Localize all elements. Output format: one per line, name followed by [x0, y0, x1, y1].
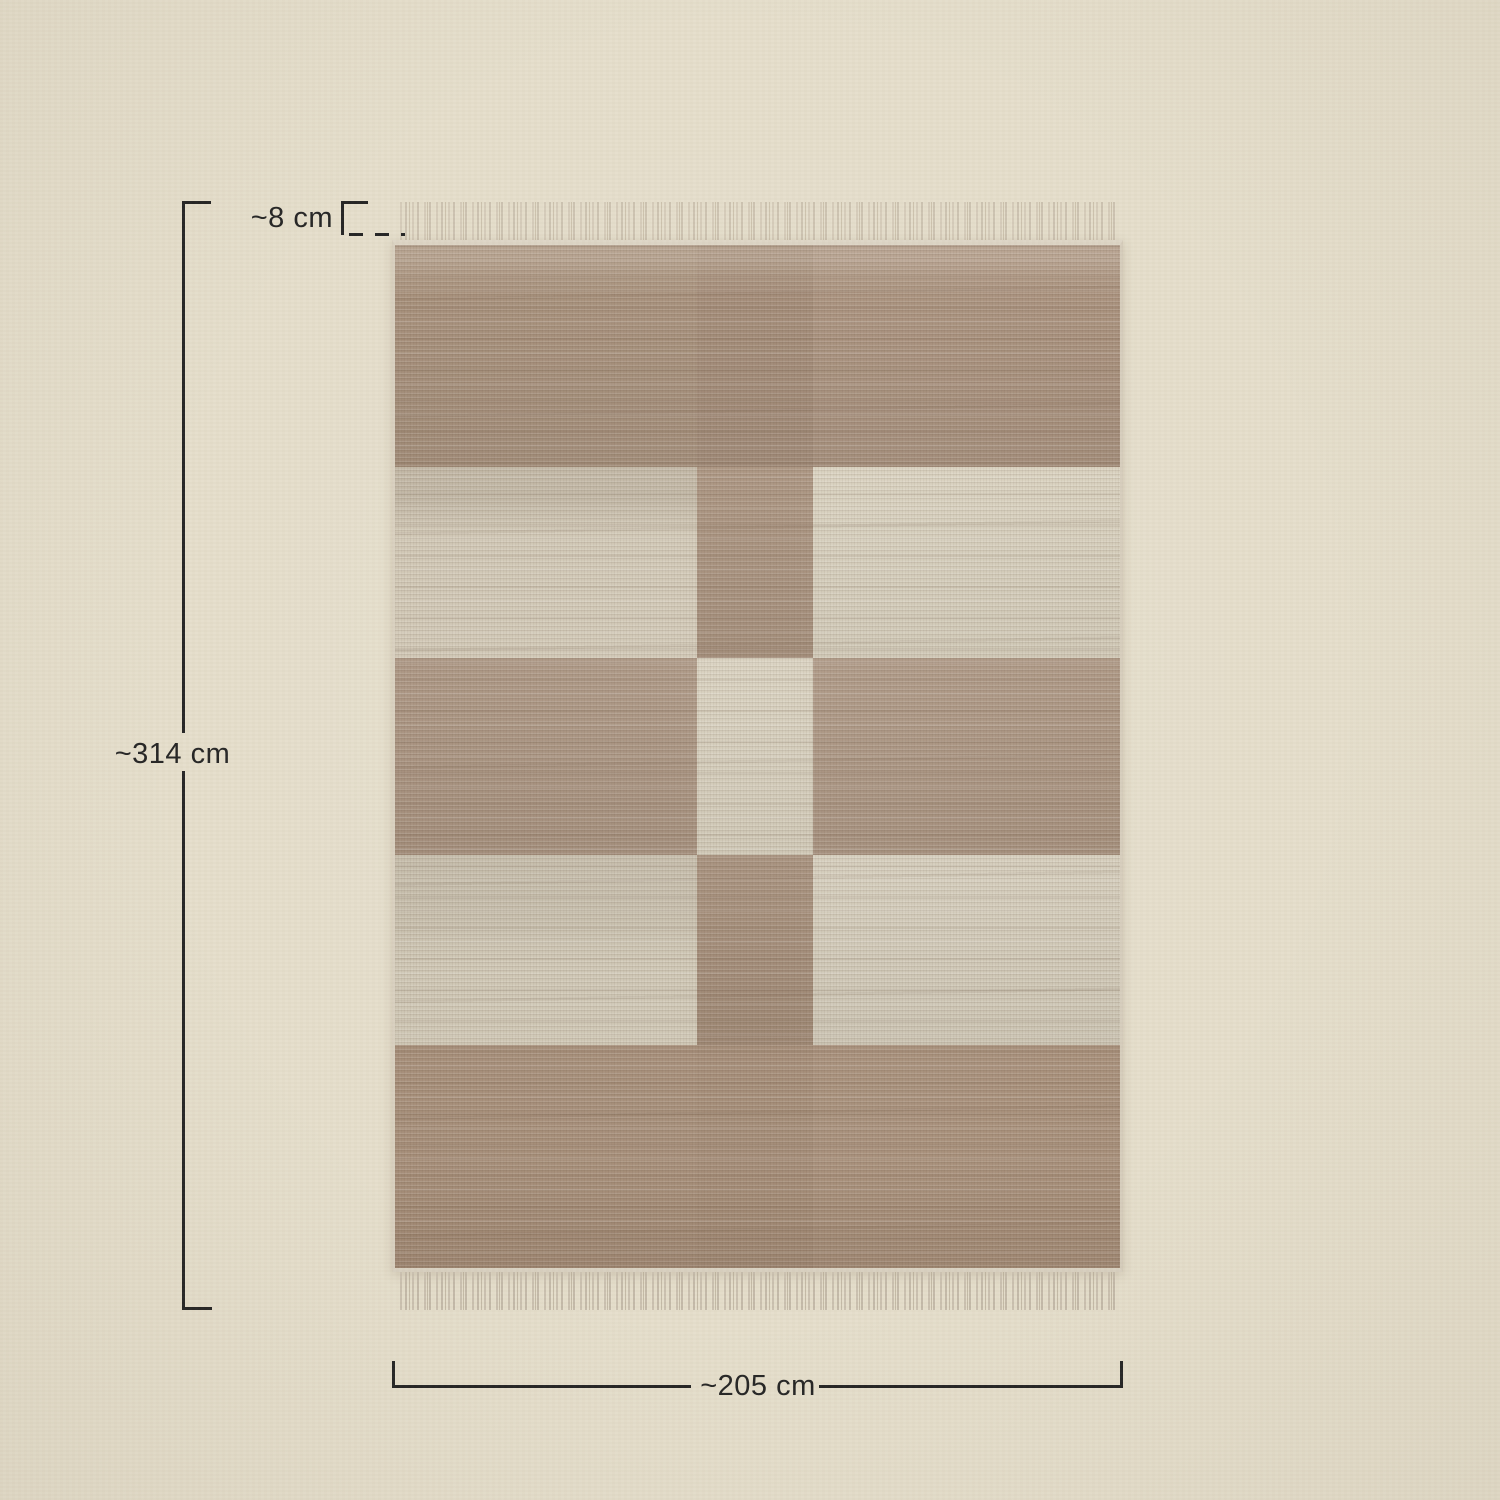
height-dimension-line-lower [182, 771, 185, 1310]
rug-block [395, 1045, 697, 1268]
width-dimension-tick-right [1120, 1361, 1123, 1388]
rug-block [395, 855, 697, 1045]
rug-block [697, 1045, 812, 1268]
rug-block [813, 855, 1120, 1045]
height-dimension-line-upper [182, 202, 185, 733]
width-dimension-tick-left [392, 1361, 395, 1388]
rug-weave [392, 240, 1123, 1272]
rug-block [813, 658, 1120, 854]
product-dimension-image: ~314 cm ~8 cm ~205 cm [0, 0, 1500, 1500]
rug-fringe-bottom [400, 1272, 1115, 1310]
rug-block [395, 245, 697, 467]
rug-fringe-top [400, 202, 1115, 240]
rug-block [813, 1045, 1120, 1268]
height-dimension-tick-top [182, 201, 211, 204]
fringe-bracket-top-arm [341, 201, 368, 204]
rug-block [813, 245, 1120, 467]
rug-block [697, 467, 812, 658]
width-dimension-label: ~205 cm [687, 1371, 829, 1402]
width-dimension-line-right [819, 1385, 1123, 1388]
width-dimension-line-left [392, 1385, 691, 1388]
rug-block [395, 467, 697, 658]
rug-block [395, 658, 697, 854]
height-dimension-tick-bottom [182, 1307, 212, 1310]
fringe-dashed-leader [349, 233, 405, 236]
rug-block [697, 855, 812, 1045]
rug [392, 202, 1123, 1310]
rug-block [697, 245, 812, 467]
height-dimension-label: ~314 cm [100, 739, 245, 770]
rug-block [697, 658, 812, 854]
fringe-dimension-label: ~8 cm [210, 203, 333, 234]
fringe-bracket-vertical [341, 201, 344, 235]
rug-block [813, 467, 1120, 658]
